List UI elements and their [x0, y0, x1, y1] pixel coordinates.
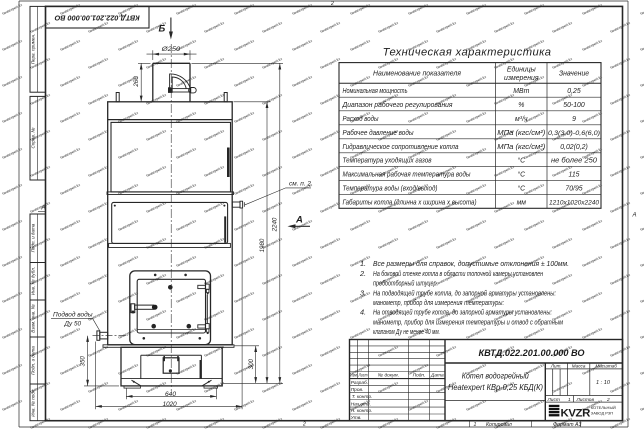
- svg-text:Лист: Лист: [358, 373, 368, 379]
- svg-text:300: 300: [248, 358, 255, 369]
- svg-text:Диапазон рабочего регулировани: Диапазон рабочего регулирования: [342, 101, 453, 109]
- svg-text:Единицы: Единицы: [507, 66, 536, 74]
- svg-text:260: 260: [133, 76, 140, 88]
- svg-text:Масса: Масса: [572, 364, 586, 369]
- svg-text:КВТД.022.201.00.000 ВО: КВТД.022.201.00.000 ВО: [479, 348, 586, 359]
- svg-text:Инв. № дубл.: Инв. № дубл.: [31, 267, 36, 295]
- svg-text:2: 2: [606, 397, 610, 403]
- svg-text:Утв.: Утв.: [351, 415, 362, 421]
- svg-text:0,02(0,2): 0,02(0,2): [560, 144, 588, 151]
- svg-text:Heatexpert КВр-0,25 КБД(К): Heatexpert КВр-0,25 КБД(К): [448, 383, 543, 392]
- svg-text:Расход воды: Расход воды: [343, 115, 379, 123]
- svg-text:Номинальная мощность: Номинальная мощность: [343, 88, 408, 95]
- svg-text:4.: 4.: [360, 308, 366, 317]
- svg-text:Масштаб: Масштаб: [595, 364, 617, 369]
- svg-text:Справ. №: Справ. №: [31, 128, 36, 149]
- svg-text:°С: °С: [517, 170, 526, 178]
- svg-text:2.: 2.: [359, 269, 366, 278]
- svg-text:Габариты котла (длинна х ширин: Габариты котла (длинна х ширина х высота…: [343, 198, 477, 206]
- svg-text:1210х1020х2240: 1210х1020х2240: [549, 199, 600, 206]
- svg-text:70/95: 70/95: [565, 185, 582, 192]
- svg-text:Ду 50: Ду 50: [64, 320, 82, 327]
- svg-text:1 : 10: 1 : 10: [596, 380, 611, 386]
- svg-text:Т. контр.: Т. контр.: [352, 394, 373, 400]
- svg-text:%: %: [518, 102, 524, 109]
- svg-text:мм: мм: [517, 199, 527, 206]
- svg-text:0,3(3,0)-0,6(6,0): 0,3(3,0)-0,6(6,0): [548, 130, 600, 137]
- svg-text:КВТД.022.201.00.000 ВО: КВТД.022.201.00.000 ВО: [54, 13, 139, 22]
- svg-text:Рабочее давление воды: Рабочее давление воды: [343, 129, 414, 137]
- svg-text:А: А: [295, 215, 303, 226]
- svg-text:МПа (кгс/см²): МПа (кгс/см²): [497, 144, 545, 151]
- svg-text:Взам. инв. №: Взам. инв. №: [31, 304, 36, 332]
- svg-text:Б: Б: [159, 24, 166, 35]
- svg-text:КОТЕЛЬНЫЙ: КОТЕЛЬНЫЙ: [591, 405, 616, 410]
- svg-text:Лист: Лист: [547, 397, 560, 403]
- svg-text:Гидравлическое сопротивление к: Гидравлическое сопротивление котла: [343, 143, 459, 151]
- svg-text:Разраб.: Разраб.: [351, 380, 368, 386]
- svg-text:Листов: Листов: [576, 397, 595, 403]
- svg-text:Подп. и дата: Подп. и дата: [31, 346, 36, 375]
- svg-text:1: 1: [568, 397, 571, 403]
- svg-text:клапаном Ду не менее 40 мм.: клапаном Ду не менее 40 мм.: [373, 327, 440, 336]
- svg-text:пробоотборный штуцер.: пробоотборный штуцер.: [373, 279, 438, 288]
- svg-text:350: 350: [80, 356, 87, 367]
- svg-text:На боковой стенке котла в обла: На боковой стенке котла в области топочн…: [373, 269, 543, 278]
- svg-text:Наименование показателя: Наименование показателя: [373, 71, 461, 78]
- svg-text:Формат А3: Формат А3: [553, 422, 581, 428]
- svg-text:°С: °С: [517, 184, 526, 192]
- svg-text:2: 2: [330, 1, 334, 7]
- svg-text:На отводящей трубе котла, до з: На отводящей трубе котла, до запорной ар…: [373, 308, 552, 317]
- svg-text:не более 250: не более 250: [551, 156, 597, 164]
- svg-text:манометр, прибор для измерения: манометр, прибор для измерения температу…: [373, 298, 504, 307]
- svg-text:ЗАВОД РЗП: ЗАВОД РЗП: [591, 410, 613, 415]
- svg-text:МВт: МВт: [513, 88, 529, 95]
- svg-text:0,25: 0,25: [567, 88, 581, 95]
- svg-text:50-100: 50-100: [563, 102, 585, 109]
- svg-text:Перв. примен.: Перв. примен.: [31, 34, 36, 65]
- svg-text:115: 115: [569, 171, 580, 178]
- svg-text:На подводящей трубе котла, до: На подводящей трубе котла, до запорной а…: [373, 288, 556, 297]
- svg-text:Значение: Значение: [559, 71, 589, 78]
- svg-text:Лит.: Лит.: [550, 364, 562, 369]
- svg-text:Дата: Дата: [430, 373, 444, 379]
- svg-text:Пров.: Пров.: [351, 387, 364, 393]
- svg-text:см. п. 2: см. п. 2: [289, 181, 311, 188]
- svg-text:№ докум.: № докум.: [378, 373, 399, 379]
- svg-text:А: А: [632, 213, 637, 219]
- svg-text:Изм: Изм: [350, 373, 358, 379]
- svg-text:9: 9: [572, 116, 576, 123]
- svg-text:Ø250: Ø250: [161, 46, 181, 53]
- svg-text:2240: 2240: [272, 217, 279, 232]
- svg-text:640: 640: [165, 392, 177, 398]
- svg-text:1: 1: [474, 422, 477, 428]
- svg-text:Подвод воды: Подвод воды: [53, 310, 93, 318]
- svg-text:измерения: измерения: [504, 75, 539, 82]
- svg-text:2: 2: [302, 422, 306, 428]
- svg-text:1020: 1020: [163, 402, 178, 408]
- svg-text:Техническая характеристика: Техническая характеристика: [383, 47, 552, 59]
- svg-text:Все размеры для справок, допус: Все размеры для справок, допустимые откл…: [373, 259, 569, 268]
- svg-text:Максимальная рабочая температу: Максимальная рабочая температура воды: [343, 170, 471, 178]
- svg-text:Температура уходящих газов: Температура уходящих газов: [343, 156, 432, 164]
- svg-text:Инв. № подл.: Инв. № подл.: [31, 388, 36, 417]
- svg-text:Подп. и дата: Подп. и дата: [31, 223, 36, 252]
- svg-text:3.: 3.: [360, 288, 366, 297]
- svg-text:Нач.отд.: Нач.отд.: [351, 401, 371, 407]
- svg-text:1.: 1.: [360, 259, 366, 268]
- svg-text:МПа (кгс/см²): МПа (кгс/см²): [497, 130, 545, 137]
- svg-text:м³/ч: м³/ч: [515, 116, 528, 123]
- svg-text:Копировал: Копировал: [486, 422, 512, 428]
- svg-text:манометр, прибор для измерения: манометр, прибор для измерения температу…: [373, 317, 563, 326]
- svg-text:Температура воды (вход/выход): Температура воды (вход/выход): [343, 184, 438, 192]
- svg-text:Котел водогрейный: Котел водогрейный: [462, 372, 529, 381]
- svg-text:°С: °С: [517, 156, 526, 164]
- svg-text:1980: 1980: [259, 238, 266, 252]
- svg-text:Н. контр.: Н. контр.: [351, 408, 373, 414]
- svg-text:KVZR: KVZR: [561, 407, 591, 419]
- svg-text:А: А: [41, 206, 46, 212]
- svg-text:Подп.: Подп.: [413, 373, 426, 379]
